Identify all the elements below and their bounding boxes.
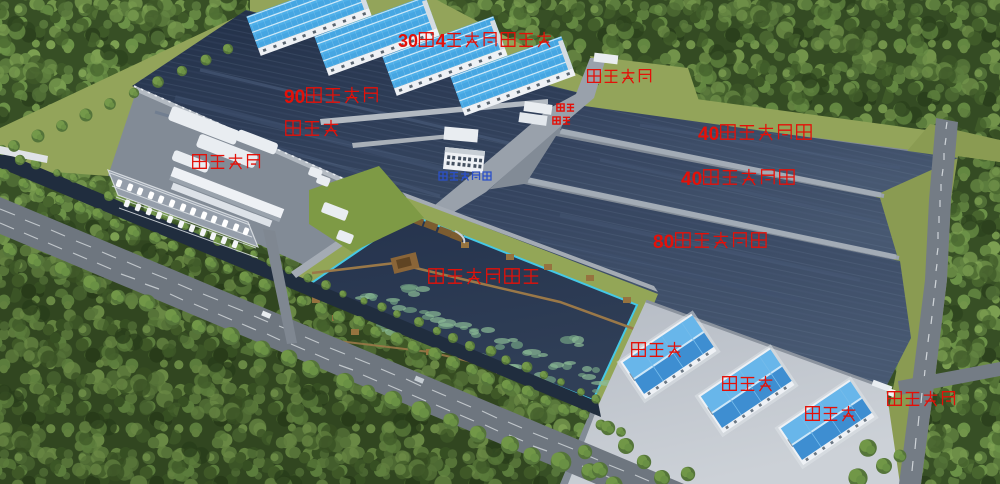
svg-text:4: 4 — [436, 31, 446, 51]
svg-text:40: 40 — [681, 169, 702, 190]
svg-text:40: 40 — [698, 124, 719, 145]
svg-text:90: 90 — [284, 87, 305, 108]
svg-text:80: 80 — [653, 232, 674, 253]
svg-text:30: 30 — [398, 31, 418, 51]
